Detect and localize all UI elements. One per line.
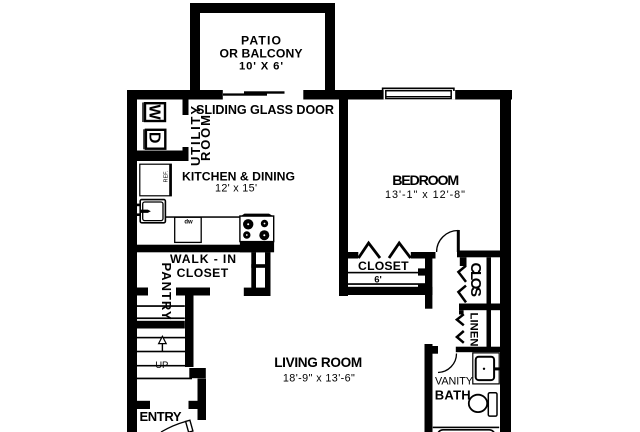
svg-text:12' x 15': 12' x 15' <box>215 183 257 195</box>
svg-text:ROOM: ROOM <box>198 115 213 161</box>
svg-text:13'-1" x 12'-8": 13'-1" x 12'-8" <box>385 189 465 201</box>
svg-text:6': 6' <box>374 275 382 286</box>
svg-text:LIVING ROOM: LIVING ROOM <box>274 355 362 370</box>
svg-text:D: D <box>146 132 163 144</box>
svg-text:ENTRY: ENTRY <box>140 409 182 424</box>
svg-text:CLOSET: CLOSET <box>177 266 229 280</box>
svg-text:OR BALCONY: OR BALCONY <box>220 47 303 61</box>
svg-text:PATIO: PATIO <box>241 34 281 48</box>
svg-text:CLOS: CLOS <box>467 263 484 298</box>
svg-text:SLIDING GLASS DOOR: SLIDING GLASS DOOR <box>196 103 334 117</box>
svg-text:REF.: REF. <box>164 170 170 182</box>
svg-text:KITCHEN & DINING: KITCHEN & DINING <box>182 169 295 183</box>
svg-text:10' X 6': 10' X 6' <box>239 61 283 73</box>
svg-text:W: W <box>145 105 162 121</box>
svg-text:PANTRY: PANTRY <box>159 263 174 320</box>
svg-text:CLOSET: CLOSET <box>358 259 409 273</box>
svg-text:18'-9" x 13'-6": 18'-9" x 13'-6" <box>283 372 355 384</box>
svg-text:BATH: BATH <box>435 388 471 403</box>
svg-text:BEDROOM: BEDROOM <box>392 173 459 189</box>
svg-text:dw: dw <box>184 219 193 225</box>
svg-text:UP: UP <box>155 360 168 371</box>
svg-text:LINEN: LINEN <box>468 313 480 347</box>
svg-text:WALK - IN: WALK - IN <box>170 252 236 266</box>
svg-text:VANITY: VANITY <box>435 376 473 388</box>
